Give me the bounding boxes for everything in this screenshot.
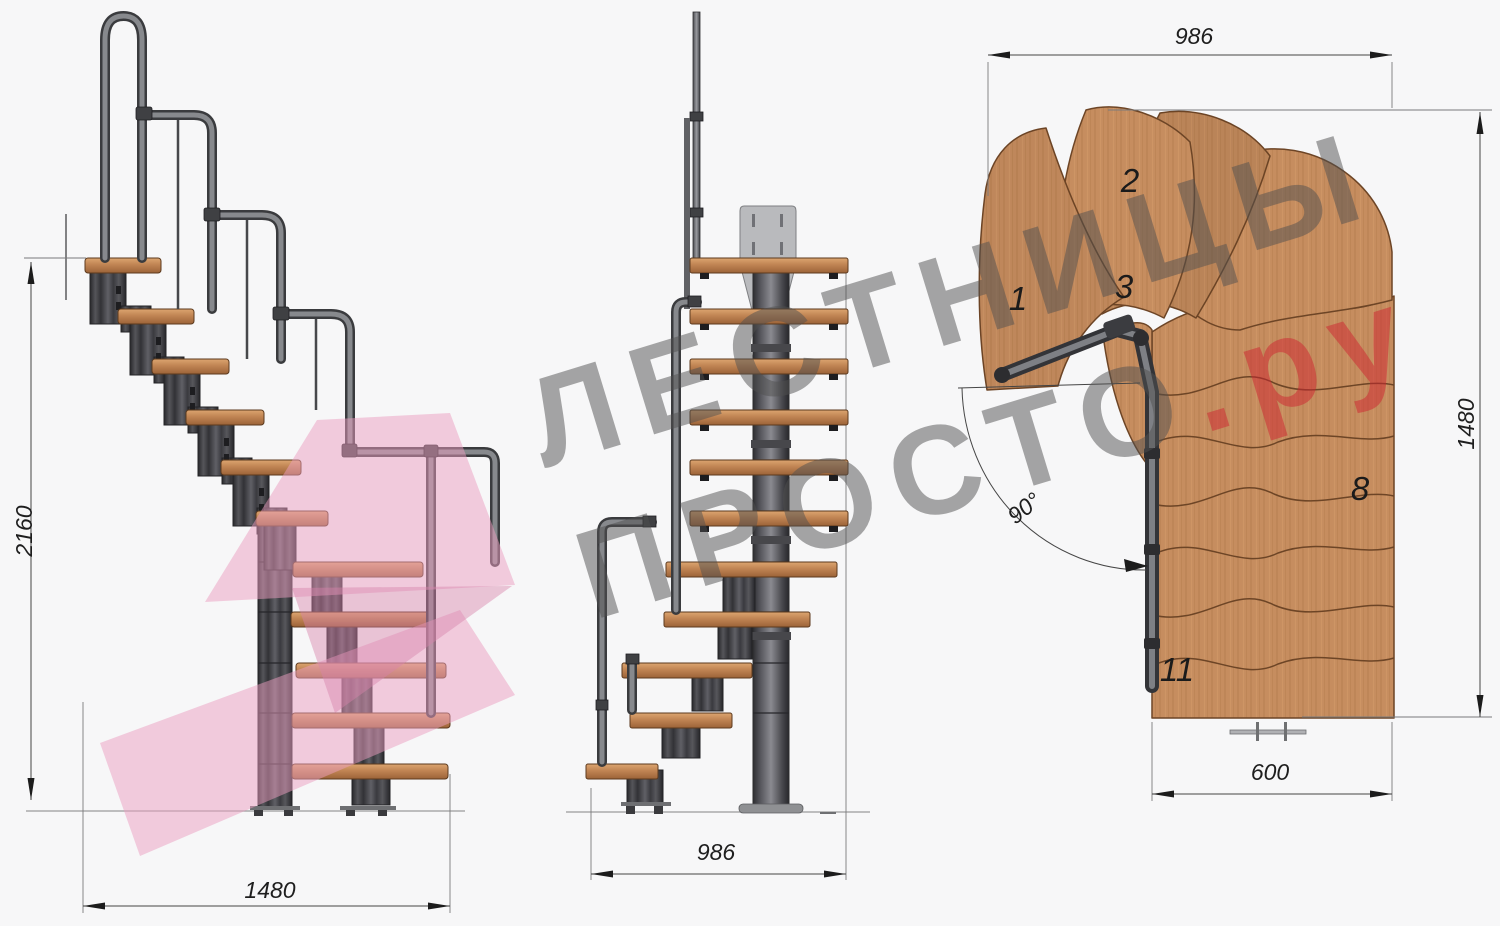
plan-step-label-1: 1	[1009, 280, 1027, 317]
plan-step-label-2: 2	[1120, 162, 1139, 199]
logo-arrow-watermark	[100, 413, 515, 856]
front-handrails	[596, 296, 701, 762]
dim-side-width: 1480	[244, 877, 295, 903]
blueprint-page: 2160 1480 986 986 1480 600	[0, 0, 1500, 926]
dim-plan-width: 986	[1175, 23, 1214, 49]
dim-turn-angle: 90°	[1002, 487, 1045, 529]
plan-step-label-11: 11	[1160, 651, 1194, 688]
dim-side-height: 2160	[11, 505, 37, 557]
plan-step-label-3: 3	[1115, 268, 1134, 305]
view-plan	[979, 107, 1394, 741]
dim-plan-depth: 1480	[1453, 398, 1479, 449]
dim-plan-tread-width: 600	[1251, 759, 1290, 785]
plan-base-plate	[1230, 722, 1306, 741]
central-column	[739, 268, 803, 813]
staircase-drawing: 2160 1480 986 986 1480 600	[0, 0, 1500, 926]
plan-step-label-8: 8	[1351, 470, 1370, 507]
view-front-elevation	[566, 12, 870, 880]
handrail-pole	[693, 12, 700, 260]
dim-front-width: 986	[697, 839, 736, 865]
